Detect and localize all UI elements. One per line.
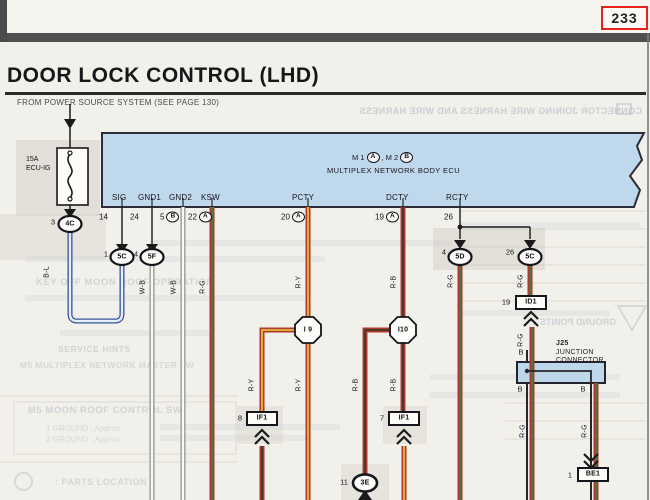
connector-code-5f: 5F	[148, 254, 157, 261]
ecu-name: MULTIPLEX NETWORK BODY ECU	[327, 166, 460, 175]
wiring-diagram-graphics	[0, 0, 650, 500]
wire-label-r-g-5c: R-G	[518, 274, 525, 288]
pin-name-pcty: PCTY	[292, 193, 314, 202]
connector-number-id1: 19	[502, 298, 510, 307]
connector-number-5d: 4	[442, 248, 446, 257]
connector-number-5c-rcty: 26	[506, 248, 514, 257]
connector-number-5f: 4	[134, 250, 138, 259]
fuse-symbol	[57, 104, 88, 218]
connector-number-be1: 1	[568, 471, 572, 480]
wire-label-b-l: B-L	[44, 266, 51, 278]
pin-number-pcty: 20 A	[281, 212, 305, 223]
pin-number: 24	[130, 213, 139, 222]
wire-label-w-b-1: W-B	[140, 280, 147, 294]
connector-code-if1-right: IF1	[399, 415, 410, 422]
pin-number: 20	[281, 213, 290, 222]
wire-r-b-dcty	[365, 207, 404, 500]
connector-code-id1: ID1	[525, 299, 537, 306]
fuse-rating: 15A	[26, 156, 51, 165]
pin-number-gnd1: 24	[130, 213, 139, 222]
pin-name-ksw: KSW	[201, 193, 220, 202]
connector-number-if1-left: 8	[238, 414, 242, 423]
pin-number: 19	[375, 213, 384, 222]
wire-label-r-y-pcty: R-Y	[296, 276, 303, 289]
pin-number-dcty: 19 A	[375, 212, 399, 223]
ecu-header: M 1 A , M 2 B	[352, 152, 413, 163]
node-i10: I10	[398, 327, 408, 334]
ecu-connector-b-icon: B	[400, 152, 413, 163]
ecu-connector-a-icon: A	[367, 152, 380, 163]
wire-label-r-g-id1: R-G	[518, 333, 525, 347]
pin-number-ksw: 22 A	[188, 212, 212, 223]
wire-label-r-b-i10-main: R-B	[391, 379, 398, 392]
scanned-manual-page: 233 DOOR LOCK CONTROL (LHD) FROM POWER S…	[0, 0, 650, 500]
pin-name-sig: SIG	[112, 193, 126, 202]
connector-number-3e: 11	[340, 478, 348, 487]
pin-number: 14	[99, 213, 108, 222]
ecu-m1-label: M 1	[352, 153, 365, 162]
wire-label-r-g-5d: R-G	[448, 274, 455, 288]
pin-connector-icon: A	[386, 212, 399, 223]
fuse-label: 15A ECU-IG	[26, 156, 51, 173]
pin-number-sig: 14	[99, 213, 108, 222]
connector-code-5c-sig: 5C	[117, 254, 126, 261]
ecu-m2-label: , M 2	[382, 153, 399, 162]
pin-number: 5	[160, 213, 164, 222]
wire-label-b-left: B	[517, 385, 522, 394]
junction-dot	[458, 225, 463, 230]
connector-code-be1: BE1	[586, 471, 600, 478]
wire-label-r-b-i10-branch: R-B	[353, 379, 360, 392]
wire-label-r-g-j25-left: R-G	[520, 424, 527, 438]
pin-name-rcty: RCTY	[446, 193, 469, 202]
pin-number-gnd2: 5 B	[160, 212, 179, 223]
pin-number-rcty: 26	[444, 213, 453, 222]
connector-code-3e: 3E	[361, 480, 370, 487]
j25-line1: JUNCTION	[556, 349, 594, 357]
connector-code-5d: 5D	[455, 254, 464, 261]
j25-id: J25	[556, 340, 569, 348]
connector-code-if1-left: IF1	[257, 415, 268, 422]
connector-code-5c-rcty: 5C	[525, 254, 534, 261]
fuse-name: ECU-IG	[26, 165, 51, 174]
pin-name-gnd2: GND2	[169, 193, 192, 202]
wire-label-b-top: B	[518, 348, 523, 357]
connector-number-4c: 3	[51, 218, 55, 227]
pin-connector-icon: B	[166, 212, 179, 223]
wire-label-r-b-dcty: R-B	[391, 276, 398, 289]
connector-number-5c-sig: 1	[104, 250, 108, 259]
wire-label-r-g-j25-right: R-G	[582, 424, 589, 438]
node-i9: I 9	[304, 327, 312, 334]
connector-code-4c: 4C	[65, 221, 74, 228]
wire-r-y-pcty	[262, 207, 308, 500]
pin-connector-icon: A	[292, 212, 305, 223]
pin-number: 26	[444, 213, 453, 222]
wire-label-b-right: B	[580, 385, 585, 394]
wire-label-r-y-i9-main: R-Y	[296, 379, 303, 392]
connector-number-if1-right: 7	[380, 414, 384, 423]
wire-label-r-y-i9-branch: R-Y	[249, 379, 256, 392]
pin-connector-icon: A	[199, 212, 212, 223]
wire-label-r-g-ksw: R-G	[200, 280, 207, 294]
pin-name-gnd1: GND1	[138, 193, 161, 202]
pin-number: 22	[188, 213, 197, 222]
j25-line2: CONNECTOR	[556, 357, 604, 365]
pin-name-dcty: DCTY	[386, 193, 409, 202]
wire-label-w-b-2: W-B	[171, 280, 178, 294]
